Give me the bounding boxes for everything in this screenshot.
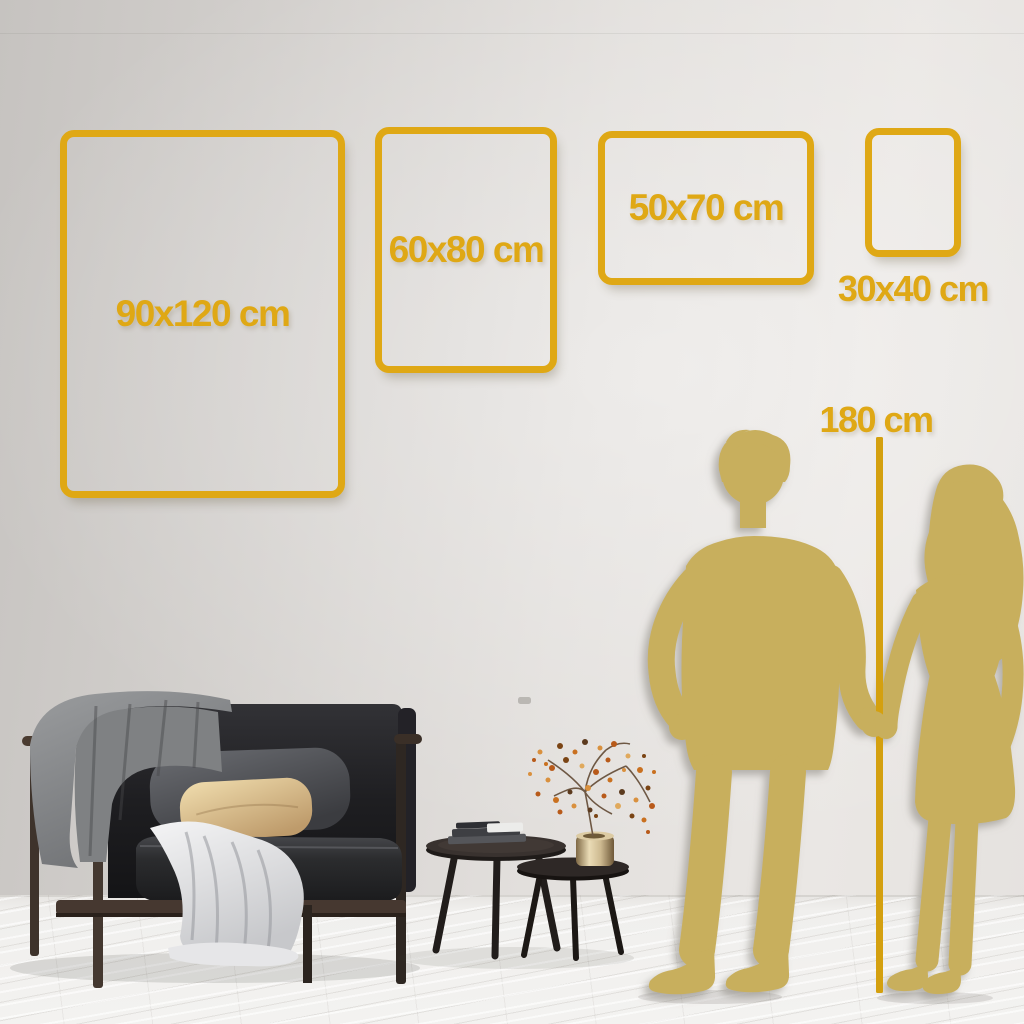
man-silhouette [649,430,868,995]
books [448,821,526,844]
nesting-coffee-tables [398,739,656,969]
height-reference-label: 180 cm [819,399,932,441]
brass-vase [576,832,614,867]
dried-branch [548,743,650,836]
branch-berries [528,739,656,834]
sofa [10,691,422,988]
woman-silhouette [887,464,1024,994]
scene-illustration [0,0,1024,1024]
couple-silhouette [649,430,1024,995]
poster-size-guide-scene: 90x120 cm 60x80 cm 50x70 cm 30x40 cm [0,0,1024,1024]
wall-socket [518,697,531,704]
